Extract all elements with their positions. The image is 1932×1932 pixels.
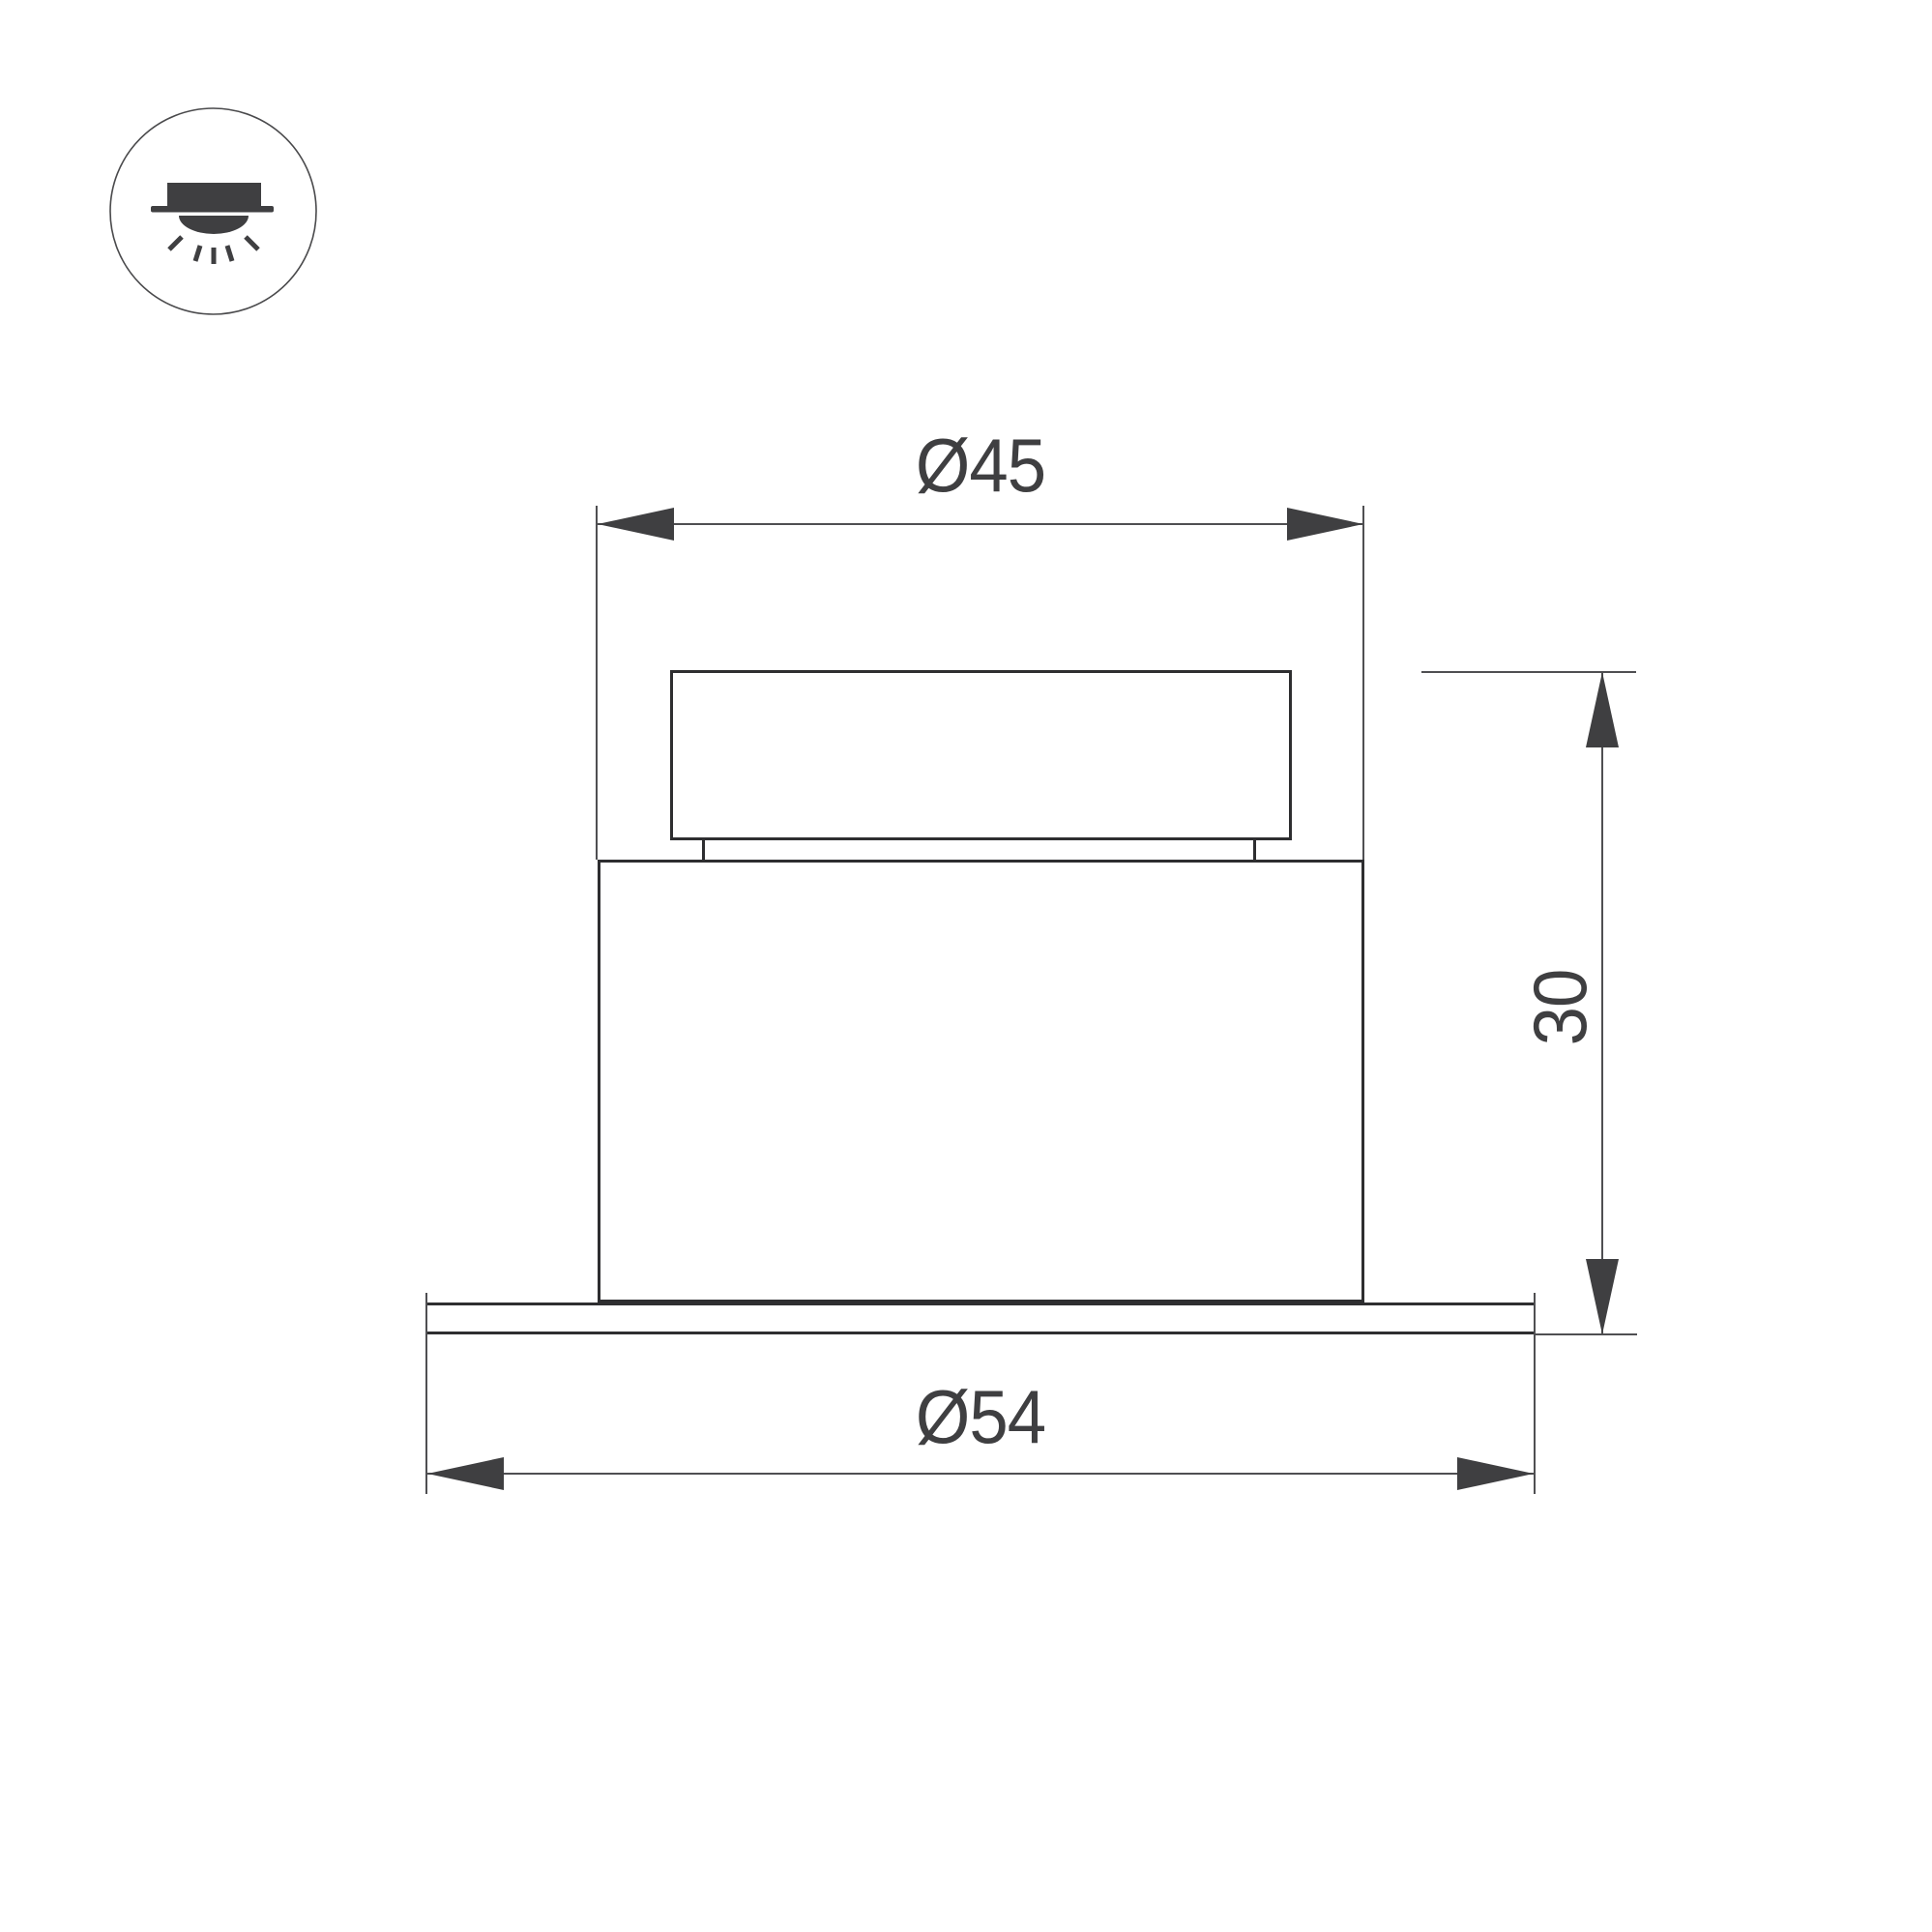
icon-light-dome <box>179 216 249 234</box>
fixture-neck-left-edge <box>702 840 705 861</box>
dim45-arrow-left <box>598 508 674 541</box>
dim54-label: Ø54 <box>846 1373 1116 1460</box>
dim45-arrow-right <box>1287 508 1363 541</box>
dim30-label: 30 <box>1516 873 1603 1143</box>
dim45-label: Ø45 <box>846 422 1116 509</box>
recessed-downlight-icon <box>108 106 318 316</box>
dim45-extension-left <box>596 506 598 860</box>
fixture-flange-plate <box>426 1303 1535 1334</box>
dim54-arrow-left <box>427 1457 504 1490</box>
dim54-extension-right <box>1534 1293 1536 1494</box>
technical-drawing-canvas: Ø45 Ø54 30 <box>0 0 1932 1932</box>
dim45-extension-right <box>1362 506 1364 860</box>
dim54-arrow-right <box>1457 1457 1534 1490</box>
dim30-arrow-up <box>1586 672 1619 747</box>
fixture-neck-right-edge <box>1253 840 1256 861</box>
dim30-arrow-down <box>1586 1259 1619 1334</box>
dim45-line <box>598 523 1363 525</box>
icon-lamp-body <box>167 183 261 208</box>
icon-ceiling-flange <box>151 206 274 213</box>
fixture-head-rect <box>670 670 1292 840</box>
icon-light-rays <box>169 237 258 264</box>
fixture-body-rect <box>598 860 1364 1303</box>
dim54-line <box>427 1473 1534 1475</box>
